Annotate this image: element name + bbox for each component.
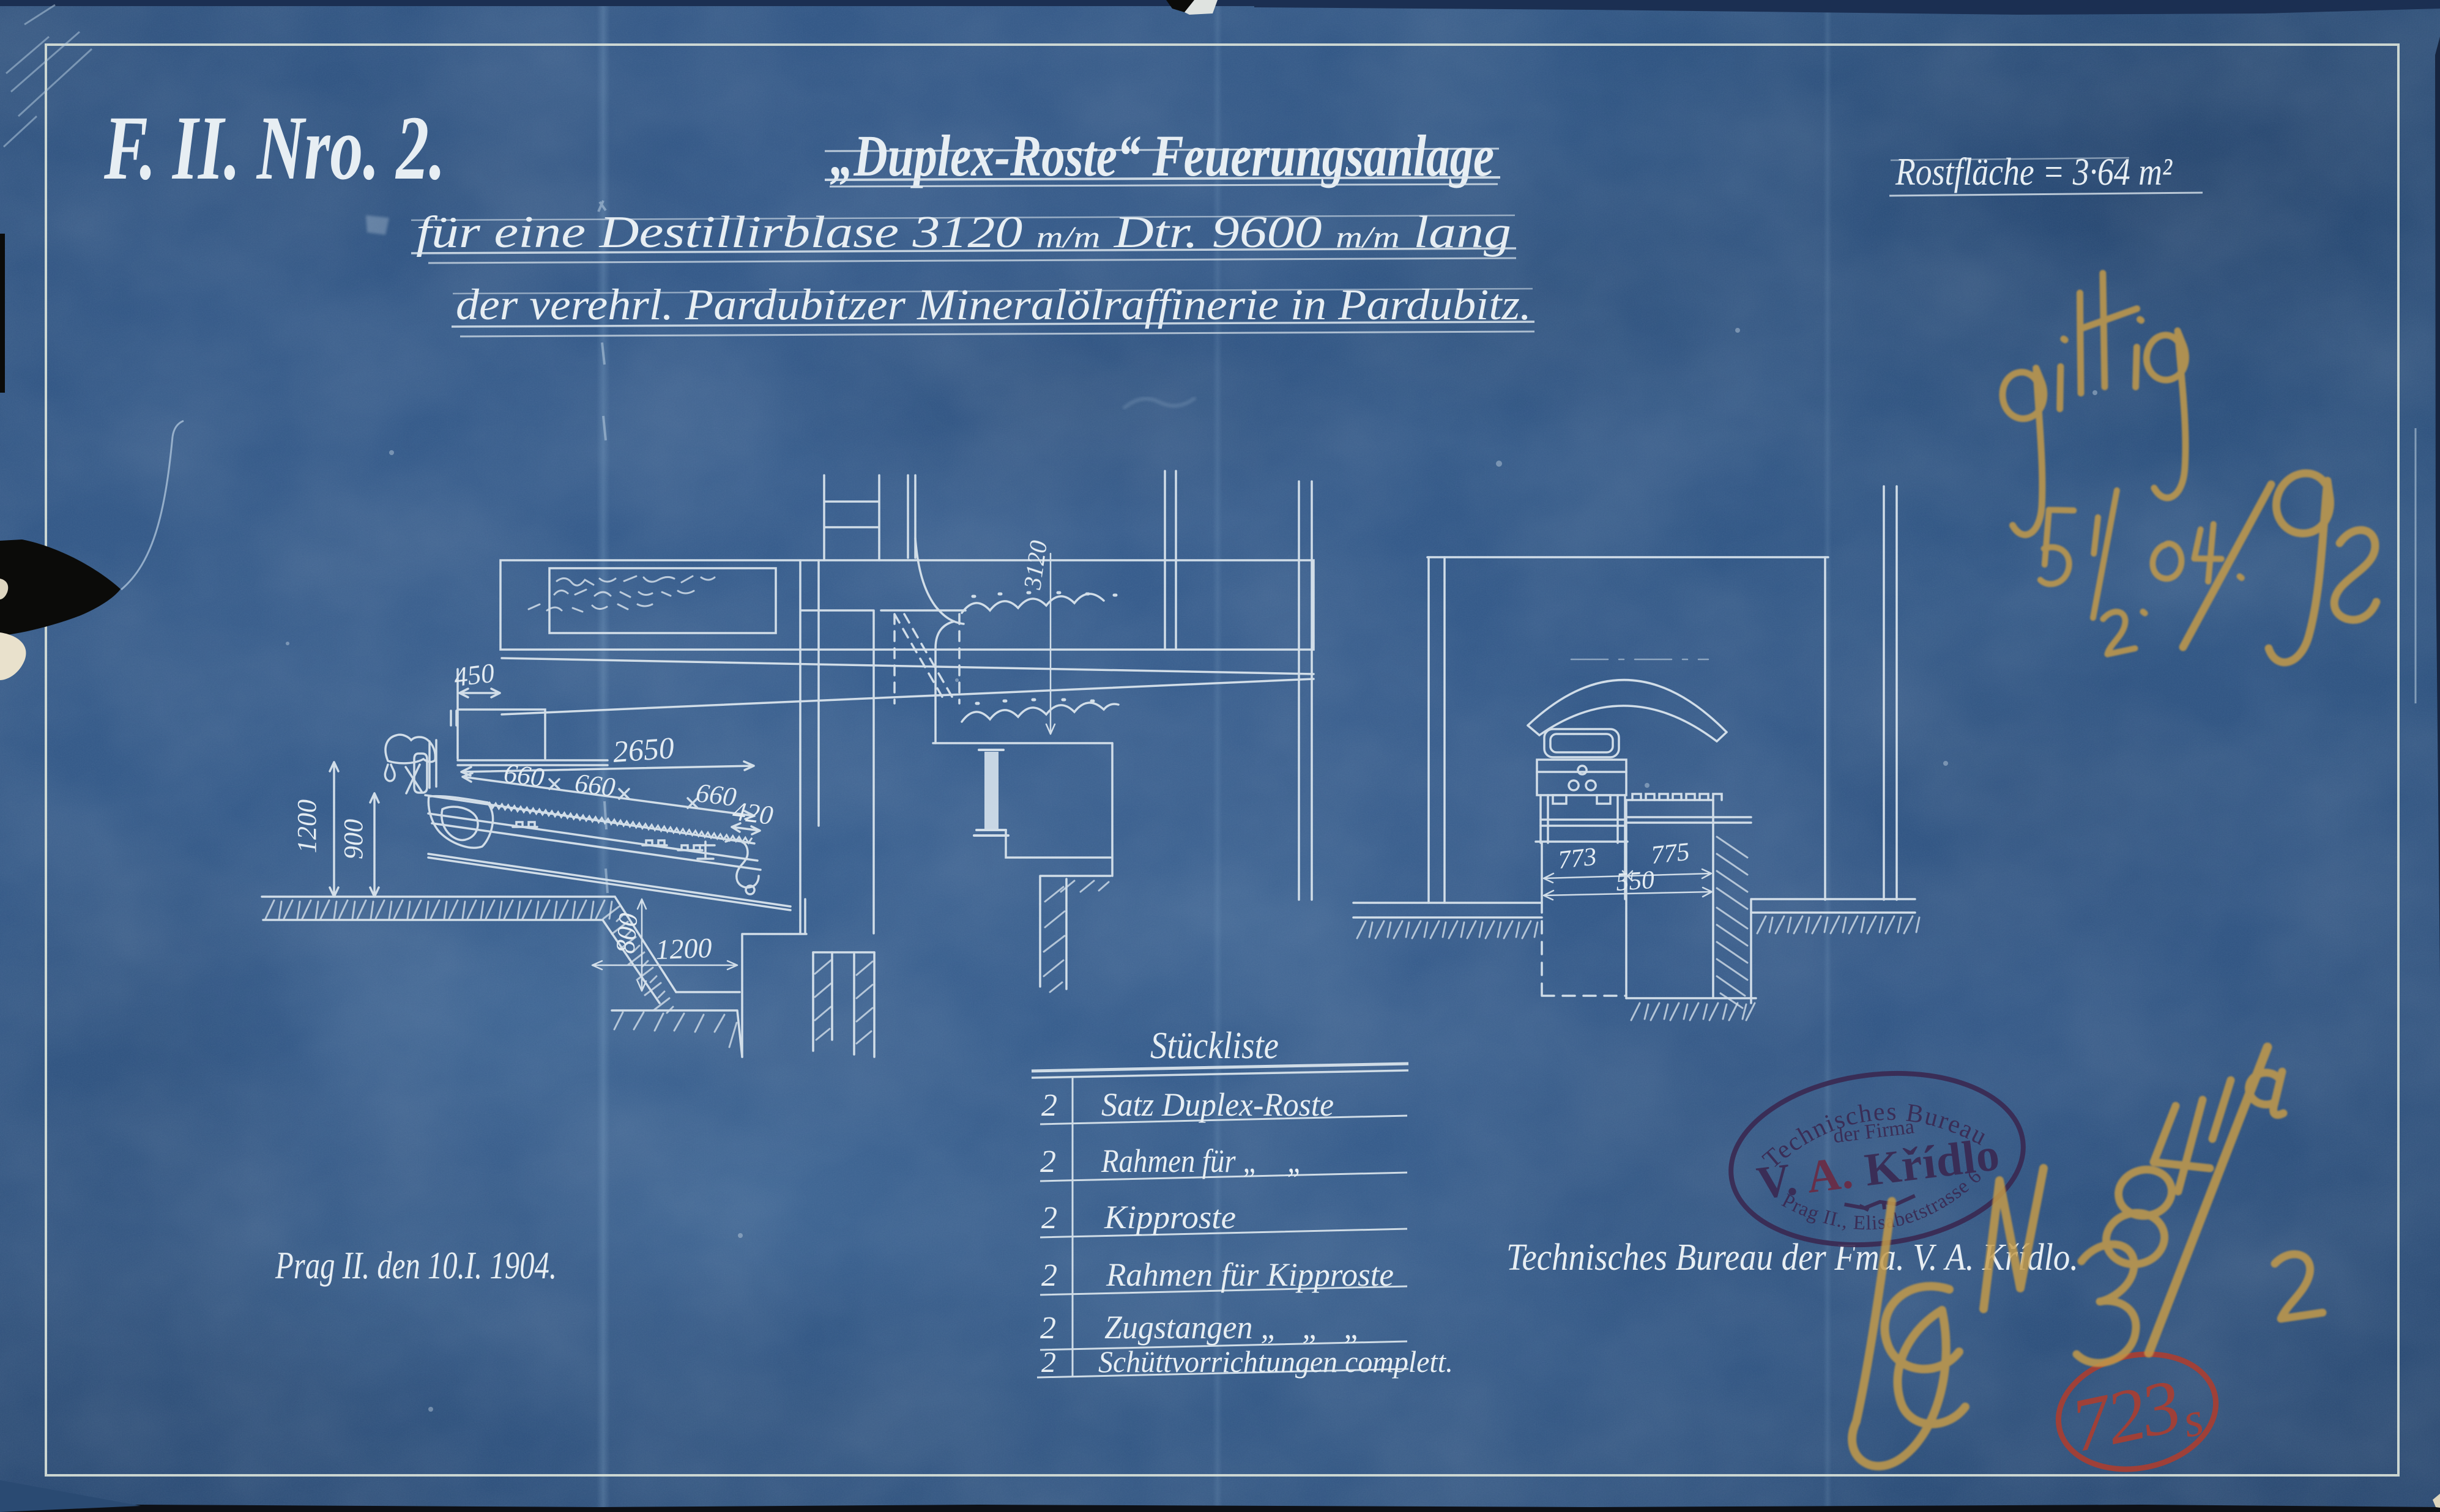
svg-text:550: 550 [1615, 866, 1655, 897]
svg-text:1200: 1200 [292, 799, 322, 853]
svg-text:2: 2 [1041, 1201, 1057, 1236]
svg-text:2: 2 [1040, 1144, 1056, 1179]
svg-text:Zugstangen „ „ „: Zugstangen „ „ „ [1104, 1309, 1361, 1346]
svg-text:800: 800 [610, 912, 644, 955]
svg-text:1200: 1200 [655, 932, 713, 965]
svg-text:2: 2 [1041, 1346, 1056, 1379]
svg-text:Stückliste: Stückliste [1150, 1025, 1279, 1067]
svg-text:Rahmen für Kipproste: Rahmen für Kipproste [1106, 1256, 1394, 1293]
svg-text:Satz Duplex-Roste: Satz Duplex-Roste [1101, 1086, 1334, 1123]
svg-text:2650: 2650 [612, 730, 675, 769]
svg-text:2: 2 [1040, 1311, 1056, 1346]
svg-text:775: 775 [1650, 838, 1691, 870]
svg-text:Schüttvorrichtungen complett.: Schüttvorrichtungen complett. [1098, 1344, 1453, 1379]
svg-text:2: 2 [1041, 1258, 1057, 1293]
svg-text:900: 900 [338, 819, 368, 859]
svg-text:660: 660 [694, 777, 738, 812]
svg-text:450: 450 [452, 658, 496, 692]
svg-text:Rostfläche = 3·64 m²: Rostfläche = 3·64 m² [1895, 150, 2173, 193]
svg-text:Kipproste: Kipproste [1104, 1199, 1236, 1236]
svg-text:773: 773 [1557, 843, 1598, 875]
svg-text:420: 420 [731, 796, 775, 831]
svg-text:F. II. Nro. 2.: F. II. Nro. 2. [103, 97, 445, 199]
svg-text:Prag II. den 10.I. 1904.: Prag II. den 10.I. 1904. [275, 1243, 557, 1287]
svg-text:660: 660 [573, 768, 617, 802]
svg-text:660: 660 [502, 758, 546, 793]
svg-text:Rahmen für „ „: Rahmen für „ „ [1101, 1143, 1303, 1179]
svg-text:2: 2 [1041, 1088, 1057, 1123]
